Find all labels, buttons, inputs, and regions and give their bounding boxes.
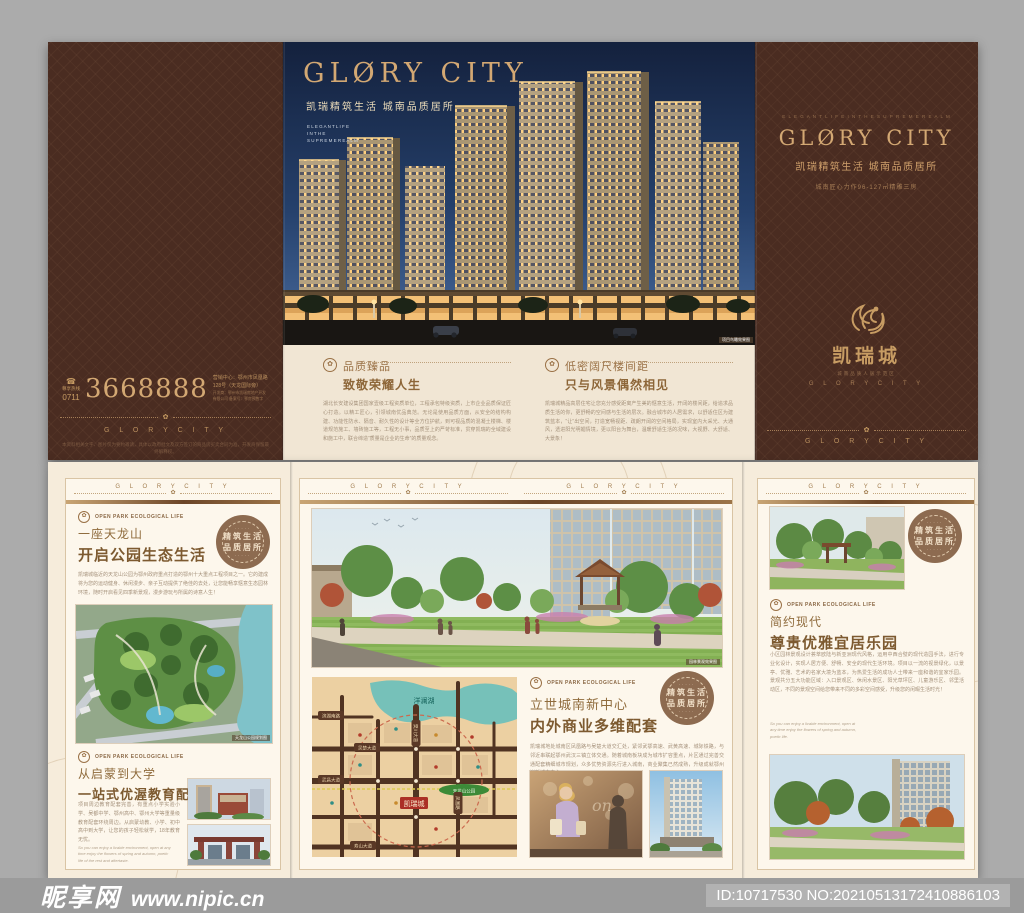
- svg-text:寿山大道: 寿山大道: [354, 843, 372, 850]
- spread-subtitle: 凯瑞精筑生活 城南品质居所: [306, 98, 455, 113]
- card-body-text: 凯瑞城临近的天龙山公园为鄂州政府重点打造的鄂州十大重点工程项目之一。它的建成将为…: [78, 571, 268, 597]
- hotline-icon-wrap: ☎ 尊享热线 0711: [62, 377, 80, 402]
- back-footer-brand: G L O R Y C I T Y: [48, 427, 283, 434]
- section-title-line2: 只与风景偶然相见: [565, 376, 669, 393]
- cover-logo: 凯瑞城 城南品质人居示范区 G L O R Y C I T Y: [755, 300, 978, 387]
- map-project-label: 凯瑞城: [404, 799, 425, 808]
- section-title-line1: 低密阔尺楼间距: [565, 358, 669, 374]
- cover-title: GLØRY CITY: [755, 126, 978, 150]
- section-spacing: ✿ 低密阔尺楼间距 只与风景偶然相见 凯瑞城精品高层住宅让您充分感受距离产生美的…: [545, 358, 733, 460]
- svg-text:樊川大道: 樊川大道: [412, 724, 419, 742]
- header-emblem-icon: ✿: [863, 490, 868, 496]
- card-body-text: 小区园林景观设计荟萃欧陆与新亚洲现代风格，运用中西合璧的现代造园手法，进行专业化…: [770, 651, 964, 695]
- address-block: 营销中心：鄂州市凤凰路128号（天龙国际旁） 开发商：鄂州市凯瑞房地产开发有限公…: [213, 374, 269, 402]
- card-header: G L O R Y C I T Y ✿: [66, 479, 280, 504]
- front-cover-panel: E L E G A N T L I F E I N T H E S U P R …: [755, 42, 978, 460]
- cover-subtitle: 凯瑞精筑生活 城南品质居所: [755, 158, 978, 173]
- card-header: G L O R Y C I T Y ✿ G L O R Y C I T Y ✿: [300, 479, 732, 504]
- nipic-preview-page: ☎ 尊享热线 0711 3668888 营销中心：鄂州市凤凰路128号（天龙国际…: [0, 0, 1024, 913]
- logo-sub: 城南品质人居示范区: [755, 371, 978, 378]
- back-cover-panel: ☎ 尊享热线 0711 3668888 营销中心：鄂州市凤凰路128号（天龙国际…: [48, 42, 283, 460]
- svg-text:on: on: [592, 796, 612, 815]
- inner-card-landscape: G L O R Y C I T Y ✿: [757, 478, 975, 870]
- section-body: 凯瑞城精品高层住宅让您充分感受距离产生美的惬意生活，开阔的楼间距，给追求品质生活…: [545, 400, 733, 444]
- inner-card-park: G L O R Y C I T Y ✿ ✿ OPEN PARK ECOLOGIC…: [65, 478, 281, 870]
- english-note: So you can enjoy a livable environment, …: [770, 721, 860, 740]
- watermark-bar: 昵享网 www.nipic.cn ID:10717530 NO:20210513…: [0, 878, 1024, 913]
- garden-caption: 园林景观效果图: [686, 659, 720, 665]
- cover-divider: ✿: [767, 427, 966, 434]
- back-divider: ✿: [60, 414, 271, 421]
- cover-footer-brand: G L O R Y C I T Y: [755, 438, 978, 445]
- section-emblem-icon: ✿: [78, 511, 90, 523]
- section-emblem-icon: ✿: [770, 599, 782, 611]
- section-emblem-icon: ✿: [78, 751, 90, 763]
- section-title-line1: 品质臻品: [343, 358, 421, 374]
- fold-seam: [742, 462, 745, 878]
- brochure-outer-sheet: ☎ 尊享热线 0711 3668888 营销中心：鄂州市凤凰路128号（天龙国际…: [48, 42, 978, 460]
- back-disclaimer: 本资料相关文字、图片仅为要约邀请，具体以政府批文及双方签订的商品房买卖合同为准，…: [62, 442, 269, 456]
- hotline-label: 尊享热线: [62, 386, 80, 393]
- address-line2: 开发商：鄂州市凯瑞房地产开发有限公司 备案号：鄂房预售字: [213, 390, 269, 402]
- section-title-line2: 致敬荣耀人生: [343, 376, 421, 393]
- night-photo-caption: 项目鸟瞰效果图: [719, 337, 753, 343]
- image-id-badge: ID:10717530 NO:20210513172410886103: [706, 884, 1010, 907]
- school-photo-1: [188, 779, 270, 819]
- header-emblem-icon: ✿: [621, 490, 626, 496]
- svg-text:吴楚大道: 吴楚大道: [358, 745, 376, 752]
- school-photo-2: [188, 825, 270, 865]
- divider-emblem-icon: ✿: [864, 427, 870, 434]
- hotline-block: ☎ 尊享热线 0711 3668888 营销中心：鄂州市凤凰路128号（天龙国际…: [62, 374, 269, 402]
- aerial-caption: 天龙山公园规划图: [232, 735, 270, 741]
- commercial-tower-photo: [650, 771, 722, 857]
- svg-text:滨湖南路: 滨湖南路: [322, 713, 340, 720]
- header-emblem-icon: ✿: [170, 490, 175, 496]
- outer-text-band: ✿ 品质臻品 致敬荣耀人生 湖北长安建设集团国家壹级工程资质单位，工程承包特级资…: [283, 345, 755, 460]
- garden-tower-photo: [770, 755, 964, 859]
- fold-seam: [290, 462, 293, 878]
- quality-stamp: ····· 精筑生活 品质居所 ·····: [662, 673, 712, 723]
- header-emblem-icon: ✿: [405, 490, 410, 496]
- logo-name-en: G L O R Y C I T Y: [755, 381, 978, 387]
- card-body-text: 项目周边教育配套完善，有重点小学实验小学、吴都中学、鄂州高中、鄂州大学等重量级教…: [78, 801, 180, 845]
- garden-render-photo: 园林景观效果图: [312, 509, 722, 667]
- outer-spread-panel: GLØRY CITY 凯瑞精筑生活 城南品质居所 E L E G A N T L…: [283, 42, 755, 460]
- section-quality: ✿ 品质臻品 致敬荣耀人生 湖北长安建设集团国家壹级工程资质单位，工程承包特级资…: [323, 358, 511, 460]
- english-note: So you can enjoy a livable environment, …: [78, 845, 173, 864]
- phoenix-logo-icon: [845, 300, 889, 336]
- quality-stamp: ····· 精筑生活 品质居所 ·····: [910, 511, 960, 561]
- section-emblem-icon: ✿: [323, 358, 337, 372]
- spread-tagline-en: E L E G A N T L I F E I N T H E S U P R …: [307, 124, 358, 144]
- card-header: G L O R Y C I T Y ✿: [758, 479, 974, 504]
- logo-name-cn: 凯瑞城: [755, 341, 978, 368]
- section-label-row: ✿ OPEN PARK ECOLOGICAL LIFE: [78, 511, 184, 523]
- aerial-park-photo: 天龙山公园规划图: [76, 605, 272, 743]
- spread-title: GLØRY CITY: [303, 58, 528, 89]
- brochure-inner-sheet: G L O R Y C I T Y ✿ ✿ OPEN PARK ECOLOGIC…: [48, 462, 978, 878]
- section-emblem-icon: ✿: [530, 677, 542, 689]
- cover-spec: 城南匠心力作96-127㎡精雕三房: [755, 182, 978, 191]
- garden-pavilion-photo: [770, 507, 904, 589]
- phone-area-code: 0711: [62, 393, 80, 402]
- section-label-row: ✿ OPEN PARK ECOLOGICAL LIFE: [78, 751, 184, 763]
- map-lake-label: 洋澜湖: [414, 696, 435, 705]
- shopping-photo: on: [530, 771, 642, 857]
- phone-number: 3668888: [85, 376, 208, 402]
- cover-tagline-en: E L E G A N T L I F E I N T H E S U P R …: [755, 114, 978, 121]
- site-url: www.nipic.cn: [131, 888, 264, 912]
- quality-stamp: ····· 精筑生活 品质居所 ·····: [218, 517, 268, 567]
- section-label-row: ✿ OPEN PARK ECOLOGICAL LIFE: [770, 599, 876, 611]
- card-title: 简约现代 尊贵优雅宜居乐园: [770, 613, 898, 653]
- night-render-photo: GLØRY CITY 凯瑞精筑生活 城南品质居所 E L E G A N T L…: [283, 42, 755, 345]
- section-emblem-icon: ✿: [545, 358, 559, 372]
- site-logo: 昵享网 www.nipic.cn: [0, 878, 264, 913]
- site-name: 昵享网: [40, 878, 121, 913]
- address-line1: 营销中心：鄂州市凤凰路128号（天龙国际旁）: [213, 374, 269, 390]
- inner-card-center: G L O R Y C I T Y ✿ G L O R Y C I T Y ✿: [299, 478, 733, 870]
- location-map: 洋澜湖: [312, 677, 517, 857]
- card-title: 一座天龙山 开启公园生态生活: [78, 525, 206, 565]
- svg-text:凤凰路: 凤凰路: [454, 796, 461, 810]
- section-body: 湖北长安建设集团国家壹级工程资质单位，工程承包特级资质，上市企业品质保证匠心打造…: [323, 400, 511, 444]
- svg-text:武昌大道: 武昌大道: [322, 777, 340, 784]
- card-title: 从启蒙到大学 一站式优渥教育配套: [78, 765, 204, 803]
- divider-emblem-icon: ✿: [163, 414, 169, 421]
